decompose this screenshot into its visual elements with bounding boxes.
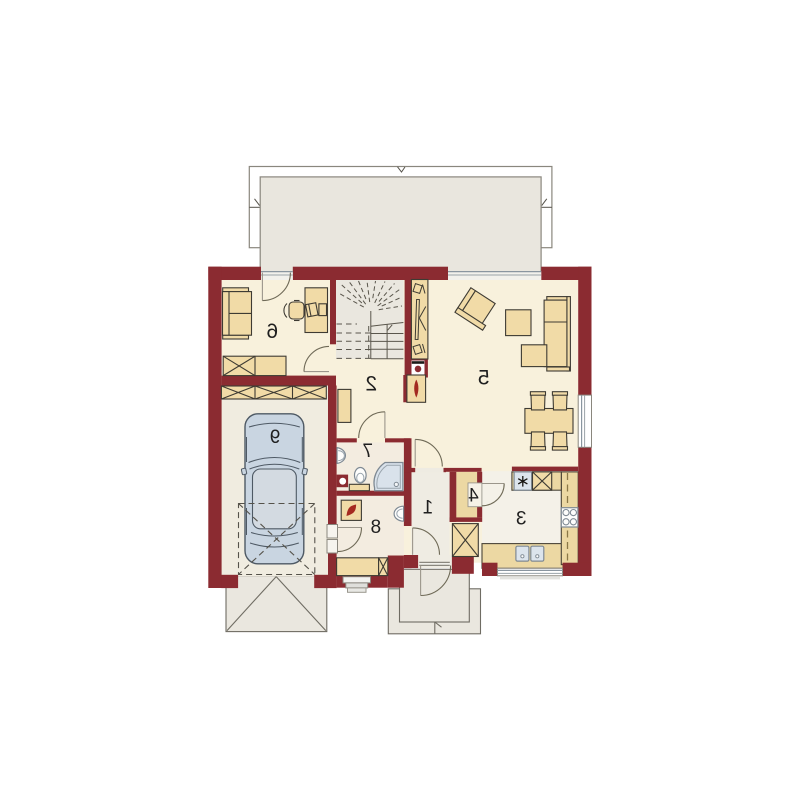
svg-text:1: 1 (423, 498, 434, 519)
svg-text:3: 3 (516, 509, 527, 530)
svg-text:4: 4 (468, 485, 479, 506)
svg-text:5: 5 (478, 367, 490, 390)
svg-text:8: 8 (371, 517, 382, 538)
svg-text:9: 9 (270, 427, 281, 448)
svg-text:6: 6 (266, 320, 278, 343)
svg-text:7: 7 (362, 441, 373, 462)
svg-text:2: 2 (365, 373, 377, 396)
